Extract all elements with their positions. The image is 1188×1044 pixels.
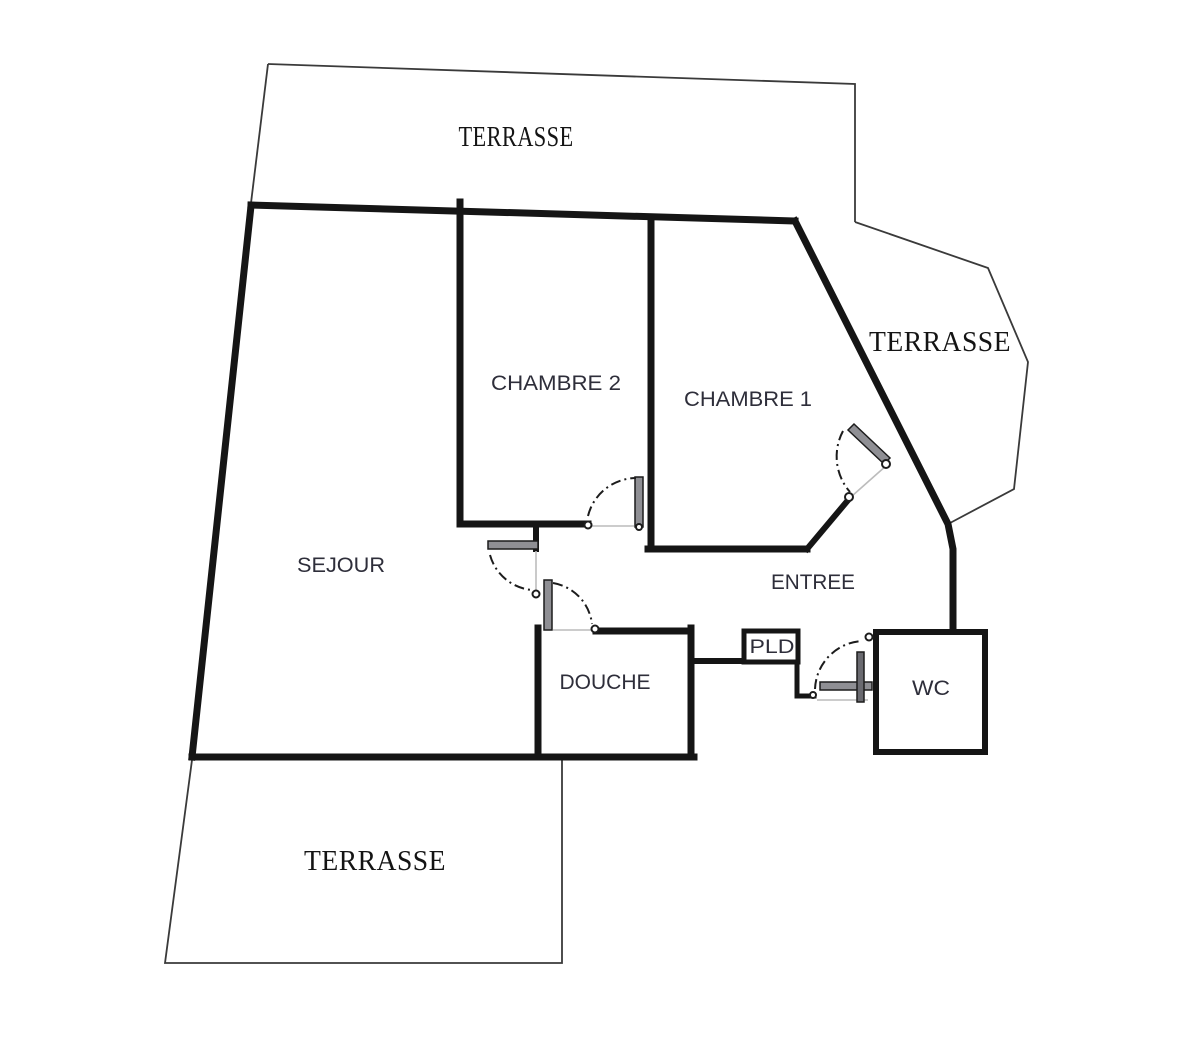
door-chambre2 bbox=[585, 477, 644, 530]
label-chambre-1: CHAMBRE 1 bbox=[684, 388, 812, 411]
door-leaf-chambre2 bbox=[635, 477, 643, 527]
terrace-outlines bbox=[165, 64, 1028, 963]
label-sejour: SEJOUR bbox=[297, 554, 385, 577]
door-cap-douche bbox=[592, 626, 599, 633]
label-pld: PLD bbox=[750, 637, 795, 658]
door-swing-douche bbox=[553, 583, 592, 624]
door-leaf-douche bbox=[544, 580, 552, 630]
threshold-chambre1 bbox=[852, 465, 887, 496]
label-terrasse-right: TERRASSE bbox=[869, 327, 1011, 358]
door-jamb-wc bbox=[857, 652, 864, 702]
door-wc bbox=[810, 634, 873, 703]
label-douche: DOUCHE bbox=[560, 671, 651, 694]
door-leaf-chambre1 bbox=[848, 424, 890, 464]
wall-top bbox=[251, 205, 795, 221]
door-chambre1 bbox=[837, 424, 890, 501]
door-cap-chambre1 bbox=[845, 493, 853, 501]
door-leaf-sejour bbox=[488, 541, 538, 549]
wall-below-pld bbox=[797, 662, 814, 696]
door-swing-sejour bbox=[490, 555, 532, 590]
wall-chambre1-door-jamb bbox=[807, 499, 849, 549]
door-sejour bbox=[488, 541, 540, 598]
door-cap-chambre2 bbox=[585, 522, 592, 529]
label-chambre-2: CHAMBRE 2 bbox=[491, 372, 621, 395]
floorplan-canvas: TERRASSE SEJOUR CHAMBRE 2 CHAMBRE 1 TERR… bbox=[0, 0, 1188, 1044]
terrace-right-outline bbox=[855, 222, 1028, 523]
wall-left bbox=[192, 206, 251, 757]
label-wc: WC bbox=[912, 677, 950, 700]
door-hinge-wc bbox=[866, 634, 873, 641]
door-douche bbox=[544, 580, 599, 633]
label-entree: ENTREE bbox=[771, 571, 855, 594]
terrace-top-left-outline bbox=[251, 64, 268, 203]
door-hinge-chambre1 bbox=[882, 460, 890, 468]
floorplan-page: TERRASSE SEJOUR CHAMBRE 2 CHAMBRE 1 TERR… bbox=[0, 0, 1188, 1044]
label-terrasse-bottom: TERRASSE bbox=[304, 846, 446, 877]
door-cap-wc bbox=[810, 692, 816, 698]
label-terrasse-top: TERRASSE bbox=[459, 122, 574, 153]
door-cap-sejour bbox=[533, 591, 540, 598]
door-hinge-chambre2 bbox=[636, 524, 642, 530]
door-swing-chambre2 bbox=[588, 478, 636, 516]
door-swing-chambre1 bbox=[837, 431, 850, 492]
